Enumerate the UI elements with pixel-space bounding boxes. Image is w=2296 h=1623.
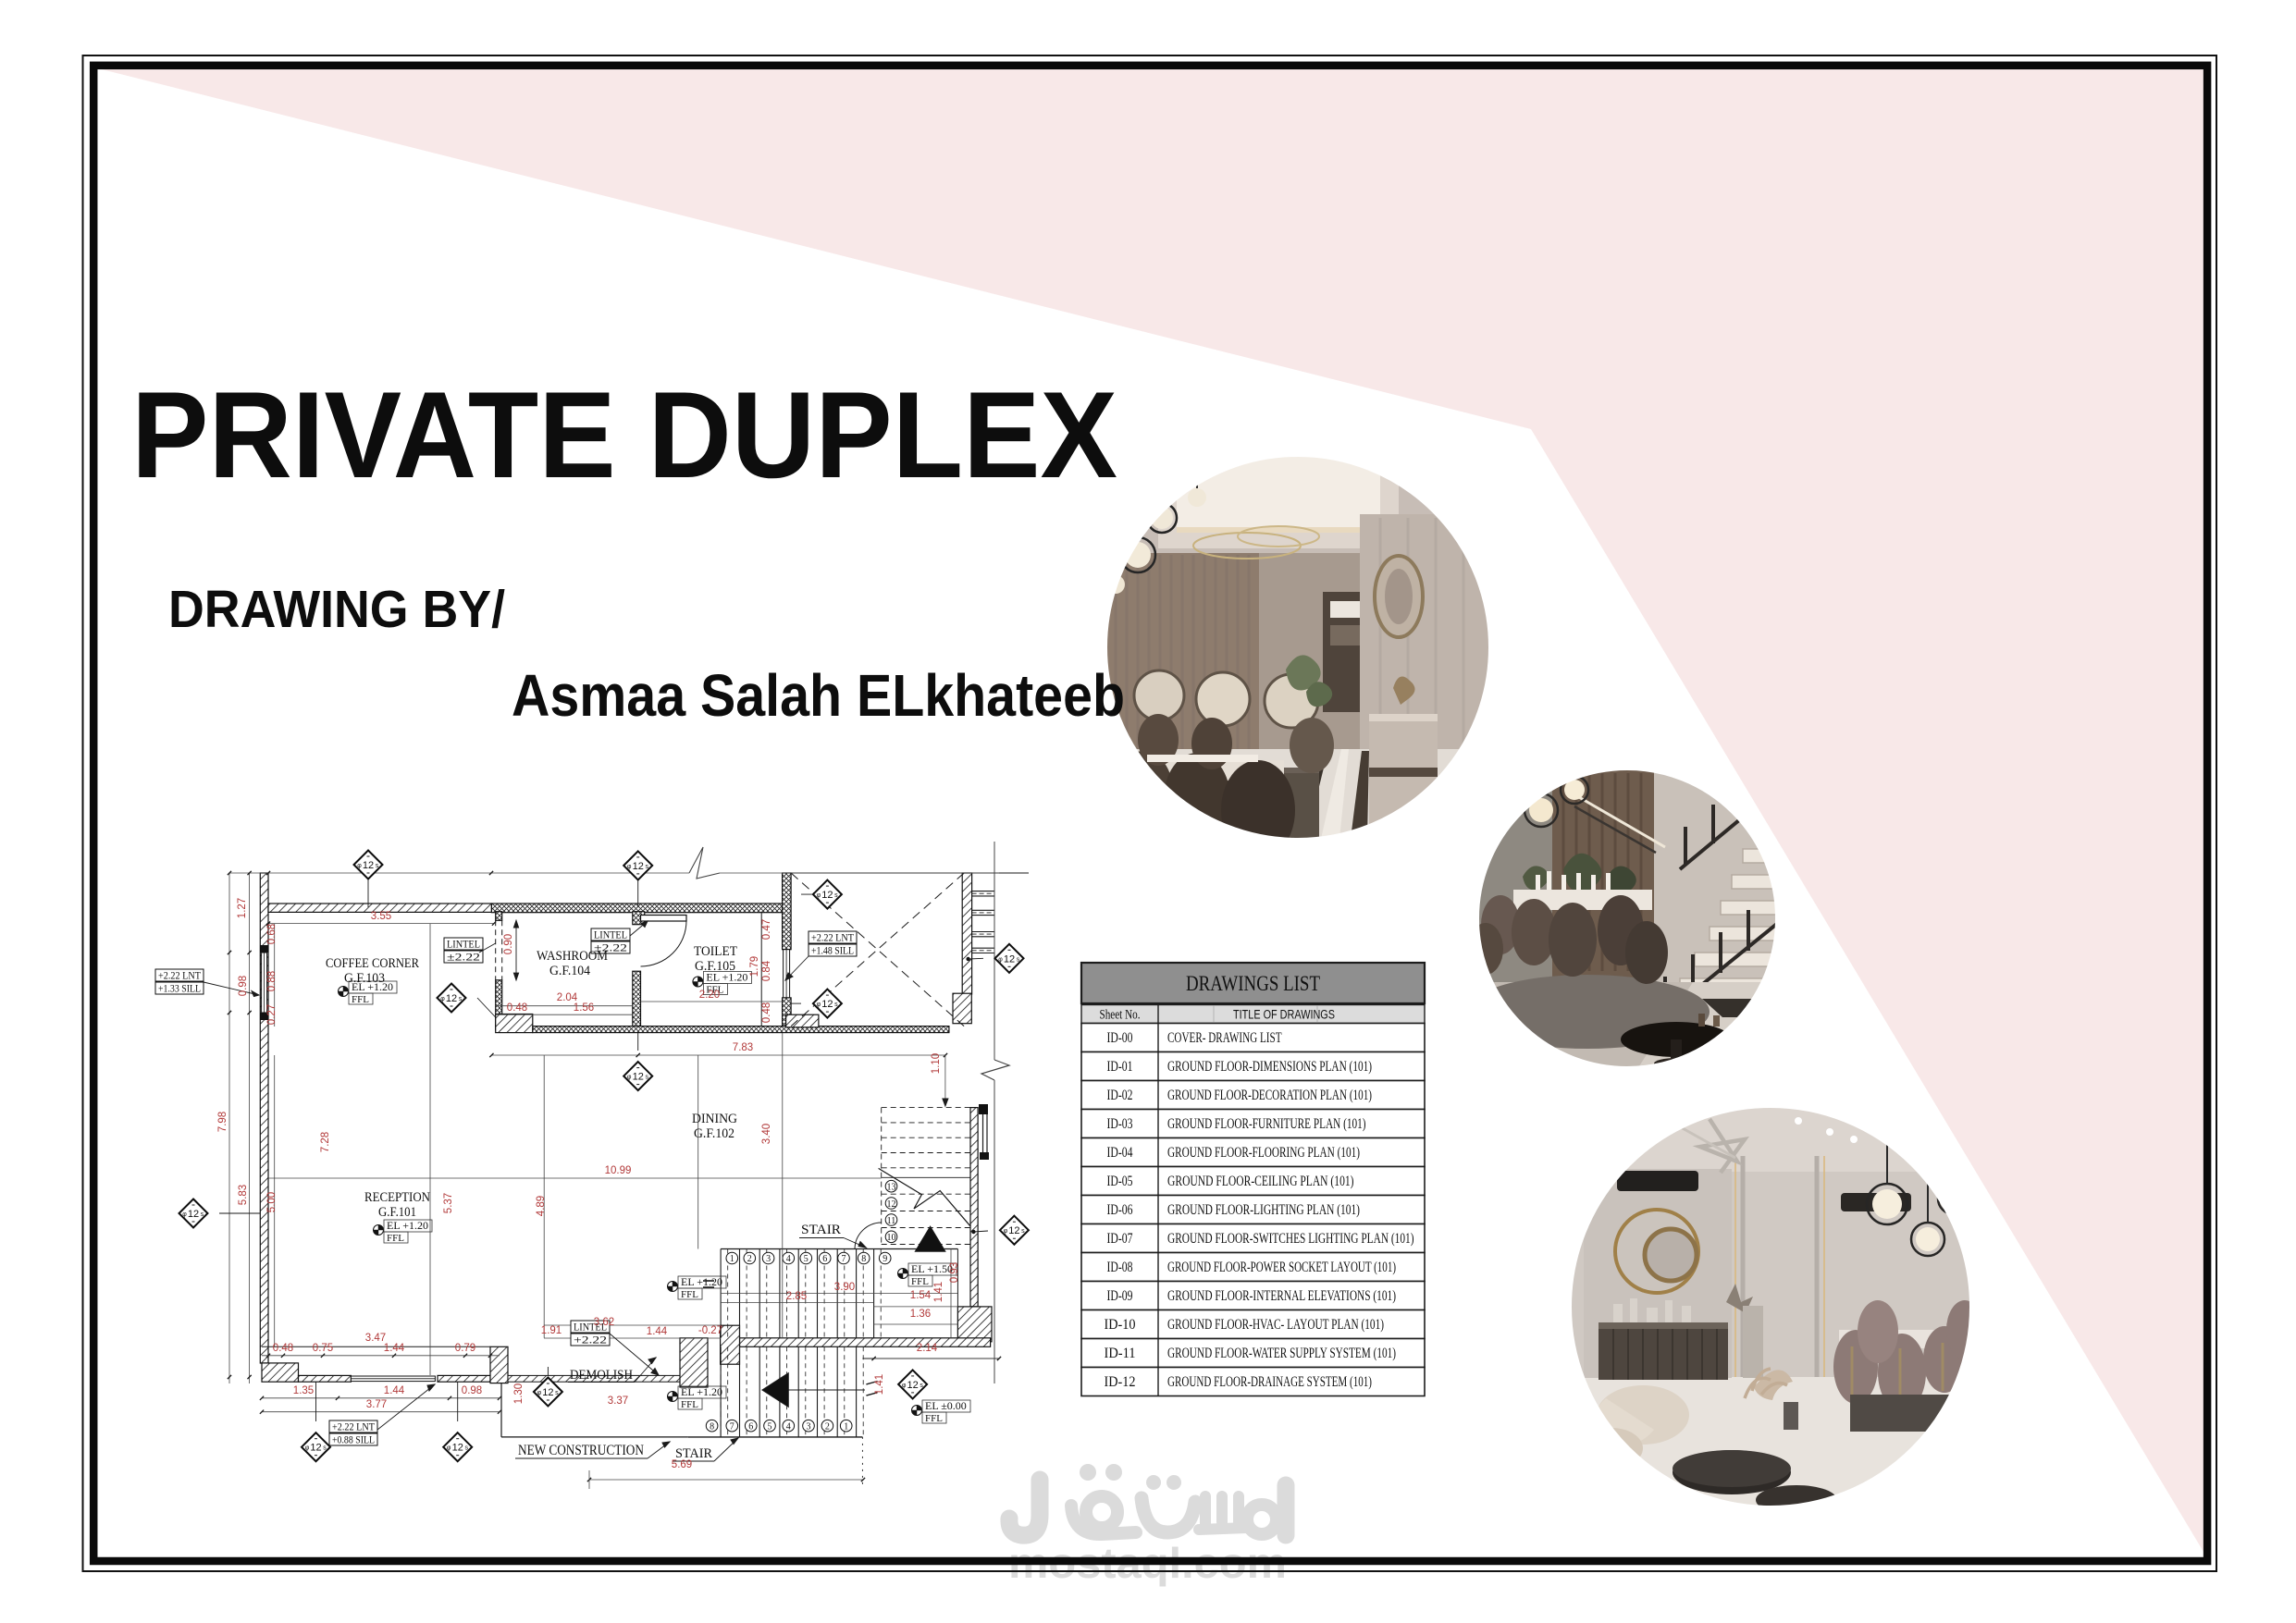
- svg-text:+1.33 SILL: +1.33 SILL: [158, 982, 201, 995]
- svg-text:s: s: [1021, 1228, 1025, 1235]
- svg-text:11: 11: [887, 1216, 896, 1226]
- svg-text:s: s: [645, 1075, 648, 1081]
- svg-text:12: 12: [887, 1199, 896, 1210]
- svg-text:s: s: [555, 1390, 559, 1396]
- svg-text:s: s: [1017, 956, 1020, 963]
- svg-text:1: 1: [844, 1422, 848, 1432]
- svg-text:GROUND FLOOR-DIMENSIONS PLAN (: GROUND FLOOR-DIMENSIONS PLAN (101): [1167, 1059, 1372, 1075]
- svg-text:FFL: FFL: [387, 1233, 404, 1244]
- svg-text:ID-01: ID-01: [1107, 1059, 1133, 1075]
- svg-text:FFL: FFL: [925, 1413, 943, 1424]
- svg-text:ID-09: ID-09: [1107, 1288, 1133, 1304]
- svg-text:1.41: 1.41: [874, 1374, 885, 1395]
- svg-text:3.90: 3.90: [834, 1282, 855, 1293]
- svg-text:3.62: 3.62: [594, 1317, 614, 1328]
- svg-text:7.98: 7.98: [217, 1112, 228, 1132]
- svg-text:s: s: [323, 1445, 327, 1452]
- svg-text:0.88: 0.88: [266, 971, 278, 991]
- svg-text:0.48: 0.48: [507, 1002, 527, 1014]
- svg-text:1.10: 1.10: [931, 1053, 942, 1074]
- svg-text:3.37: 3.37: [608, 1396, 628, 1407]
- svg-text:12: 12: [1008, 1225, 1019, 1236]
- svg-text:-0.27: -0.27: [698, 1325, 722, 1336]
- svg-text:s: s: [376, 863, 379, 869]
- svg-text:5.00: 5.00: [266, 1192, 278, 1212]
- svg-text:+0.88 SILL: +0.88 SILL: [332, 1433, 375, 1446]
- svg-text:ID-12: ID-12: [1105, 1374, 1136, 1390]
- svg-text:G.F.101: G.F.101: [378, 1205, 416, 1220]
- svg-text:0.75: 0.75: [313, 1343, 333, 1354]
- svg-text:GROUND FLOOR-POWER SOCKET LAYO: GROUND FLOOR-POWER SOCKET LAYOUT (101): [1167, 1260, 1396, 1275]
- svg-text:φ: φ: [357, 863, 362, 869]
- svg-text:1.56: 1.56: [574, 1002, 594, 1014]
- svg-text:s: s: [201, 1211, 204, 1218]
- svg-text:EL +1.20: EL +1.20: [387, 1219, 428, 1232]
- svg-text:9: 9: [883, 1254, 887, 1264]
- svg-text:3.77: 3.77: [366, 1399, 387, 1410]
- svg-text:ID-08: ID-08: [1107, 1260, 1133, 1275]
- svg-text:G.F.102: G.F.102: [694, 1126, 734, 1141]
- svg-text:3: 3: [766, 1254, 771, 1264]
- svg-text:+2.22 LNT: +2.22 LNT: [158, 969, 202, 982]
- svg-text:DINING: DINING: [692, 1112, 737, 1126]
- svg-text:0.98: 0.98: [238, 976, 249, 996]
- svg-text:COFFEE CORNER: COFFEE CORNER: [326, 956, 419, 971]
- svg-text:φ: φ: [817, 1002, 821, 1008]
- svg-text:1.54: 1.54: [910, 1290, 932, 1301]
- svg-text:GROUND FLOOR-LIGHTING PLAN (10: GROUND FLOOR-LIGHTING PLAN (101): [1167, 1202, 1360, 1218]
- svg-text:FFL: FFL: [681, 1289, 698, 1300]
- svg-text:s: s: [459, 996, 463, 1002]
- svg-text:EL +1.20: EL +1.20: [681, 1385, 722, 1398]
- svg-text:7: 7: [730, 1422, 734, 1432]
- svg-text:GROUND FLOOR-SWITCHES LIGHTING: GROUND FLOOR-SWITCHES LIGHTING PLAN (101…: [1167, 1231, 1414, 1247]
- svg-text:12: 12: [633, 861, 644, 872]
- svg-text:GROUND FLOOR-CEILING PLAN (101: GROUND FLOOR-CEILING PLAN (101): [1167, 1174, 1354, 1189]
- svg-text:RECEPTION: RECEPTION: [364, 1190, 430, 1205]
- svg-text:s: s: [464, 1445, 468, 1452]
- svg-text:EL +1.50: EL +1.50: [911, 1262, 953, 1275]
- svg-text:φ: φ: [1004, 1228, 1008, 1235]
- svg-text:4: 4: [786, 1422, 791, 1432]
- svg-text:G.F.104: G.F.104: [549, 964, 591, 978]
- svg-text:12: 12: [633, 1072, 644, 1083]
- svg-text:2.14: 2.14: [917, 1343, 938, 1354]
- svg-text:12: 12: [310, 1443, 321, 1454]
- svg-text:EL +1.20: EL +1.20: [681, 1275, 722, 1288]
- svg-text:5.69: 5.69: [672, 1459, 692, 1470]
- svg-text:12: 12: [1004, 953, 1015, 965]
- svg-text:G.F.103: G.F.103: [344, 971, 385, 986]
- svg-text:10.99: 10.99: [605, 1165, 632, 1176]
- svg-text:PRIVATE DUPLEX: PRIVATE DUPLEX: [131, 367, 1117, 504]
- svg-text:φ: φ: [627, 864, 632, 870]
- svg-text:G.F.105: G.F.105: [695, 959, 735, 974]
- svg-text:1.27: 1.27: [237, 898, 248, 918]
- svg-text:NEW CONSTRUCTION: NEW CONSTRUCTION: [518, 1443, 644, 1458]
- svg-text:6: 6: [822, 1254, 827, 1264]
- svg-text:ID-02: ID-02: [1107, 1088, 1133, 1103]
- svg-text:0.48: 0.48: [273, 1343, 293, 1354]
- svg-text:s: s: [834, 1002, 838, 1008]
- svg-text:0.90: 0.90: [503, 934, 514, 954]
- svg-text:4.89: 4.89: [536, 1196, 547, 1216]
- svg-text:LINTEL: LINTEL: [594, 928, 627, 941]
- svg-text:GROUND FLOOR-DECORATION PLAN (: GROUND FLOOR-DECORATION PLAN (101): [1167, 1088, 1372, 1103]
- svg-text:ID-05: ID-05: [1107, 1174, 1133, 1189]
- svg-text:2: 2: [825, 1422, 830, 1432]
- svg-text:φ: φ: [627, 1075, 632, 1081]
- svg-text:7: 7: [842, 1254, 846, 1264]
- svg-text:TOILET: TOILET: [694, 944, 737, 959]
- svg-text:φ: φ: [305, 1445, 310, 1452]
- svg-text:5.37: 5.37: [443, 1193, 454, 1213]
- svg-text:1.36: 1.36: [910, 1309, 931, 1320]
- svg-text:8: 8: [861, 1254, 866, 1264]
- svg-text:ID-10: ID-10: [1105, 1317, 1136, 1333]
- svg-text:12: 12: [821, 890, 833, 901]
- svg-text:GROUND FLOOR-HVAC- LAYOUT PLAN: GROUND FLOOR-HVAC- LAYOUT PLAN (101): [1167, 1317, 1384, 1333]
- svg-text:1.41: 1.41: [933, 1282, 944, 1302]
- svg-text:3: 3: [807, 1422, 811, 1432]
- svg-text:s: s: [645, 864, 648, 870]
- svg-text:7.28: 7.28: [320, 1132, 331, 1152]
- svg-text:0.98: 0.98: [462, 1385, 482, 1396]
- svg-text:GROUND FLOOR-WATER SUPPLY SYST: GROUND FLOOR-WATER SUPPLY SYSTEM (101): [1167, 1346, 1396, 1361]
- svg-text:1.44: 1.44: [384, 1385, 405, 1396]
- svg-text:GROUND FLOOR-FURNITURE PLAN (1: GROUND FLOOR-FURNITURE PLAN (101): [1167, 1116, 1366, 1132]
- svg-text:FFL: FFL: [681, 1399, 698, 1410]
- svg-text:ID-00: ID-00: [1107, 1030, 1133, 1046]
- svg-text:GROUND FLOOR-DRAINAGE SYSTEM (: GROUND FLOOR-DRAINAGE SYSTEM (101): [1167, 1374, 1372, 1390]
- svg-text:1.35: 1.35: [293, 1385, 314, 1396]
- svg-text:COVER- DRAWING LIST: COVER- DRAWING LIST: [1167, 1030, 1282, 1046]
- svg-text:Asmaa Salah ELkhateeb: Asmaa Salah ELkhateeb: [512, 662, 1125, 729]
- svg-text:ID-04: ID-04: [1107, 1145, 1133, 1161]
- svg-text:13: 13: [887, 1183, 896, 1193]
- svg-text:2.85: 2.85: [786, 1291, 807, 1302]
- svg-text:+2.22: +2.22: [574, 1334, 607, 1346]
- svg-text:φ: φ: [902, 1383, 907, 1389]
- svg-text:ID-03: ID-03: [1107, 1116, 1133, 1132]
- svg-text:EL ±0.00: EL ±0.00: [925, 1399, 967, 1412]
- svg-text:+2.22 LNT: +2.22 LNT: [811, 931, 855, 944]
- svg-text:3.55: 3.55: [371, 911, 391, 922]
- svg-text:φ: φ: [440, 996, 445, 1002]
- svg-text:6: 6: [748, 1422, 753, 1432]
- svg-text:±2.22: ±2.22: [447, 951, 480, 964]
- svg-text:7.83: 7.83: [733, 1042, 753, 1053]
- svg-text:5: 5: [768, 1422, 772, 1432]
- svg-text:1.44: 1.44: [384, 1343, 405, 1354]
- svg-text:1.30: 1.30: [513, 1383, 525, 1404]
- svg-text:1.91: 1.91: [541, 1325, 562, 1336]
- svg-text:0.93: 0.93: [949, 1262, 960, 1283]
- svg-text:φ: φ: [817, 892, 821, 899]
- svg-text:GROUND FLOOR-FLOORING PLAN (10: GROUND FLOOR-FLOORING PLAN (101): [1167, 1145, 1360, 1161]
- svg-text:ID-11: ID-11: [1105, 1346, 1136, 1361]
- svg-text:+1.48 SILL: +1.48 SILL: [811, 944, 854, 957]
- svg-text:φ: φ: [447, 1445, 451, 1452]
- svg-text:0.79: 0.79: [455, 1343, 475, 1354]
- svg-text:1.44: 1.44: [647, 1326, 668, 1337]
- svg-text:0.48: 0.48: [761, 1002, 772, 1023]
- svg-text:LINTEL: LINTEL: [447, 938, 480, 951]
- svg-text:s: s: [920, 1383, 923, 1389]
- svg-text:ID-07: ID-07: [1107, 1231, 1133, 1247]
- svg-text:WASHROOM: WASHROOM: [537, 949, 608, 964]
- svg-text:ID-06: ID-06: [1107, 1202, 1133, 1218]
- svg-text:GROUND FLOOR-INTERNAL ELEVATIO: GROUND FLOOR-INTERNAL ELEVATIONS (101): [1167, 1288, 1396, 1304]
- svg-text:s: s: [834, 892, 838, 899]
- svg-text:10: 10: [887, 1233, 896, 1243]
- svg-text:0.47: 0.47: [761, 919, 772, 940]
- svg-text:12: 12: [446, 993, 457, 1004]
- svg-text:12: 12: [542, 1387, 553, 1398]
- svg-text:φ: φ: [537, 1390, 542, 1396]
- svg-text:+2.22 LNT: +2.22 LNT: [332, 1420, 376, 1433]
- svg-text:TITLE OF DRAWINGS: TITLE OF DRAWINGS: [1233, 1008, 1335, 1022]
- svg-text:1.79: 1.79: [749, 956, 760, 977]
- svg-text:5: 5: [804, 1254, 809, 1264]
- svg-text:DRAWINGS LIST: DRAWINGS LIST: [1186, 972, 1320, 995]
- svg-text:φ: φ: [998, 956, 1003, 963]
- svg-text:FFL: FFL: [911, 1276, 929, 1287]
- svg-text:FFL: FFL: [352, 994, 369, 1005]
- svg-text:3.40: 3.40: [761, 1124, 772, 1144]
- svg-text:5.83: 5.83: [238, 1185, 249, 1205]
- svg-text:8: 8: [710, 1422, 714, 1432]
- svg-text:Sheet No.: Sheet No.: [1100, 1008, 1141, 1023]
- svg-text:0.27: 0.27: [266, 1004, 278, 1025]
- svg-text:2: 2: [747, 1254, 752, 1264]
- svg-text:0.68: 0.68: [266, 924, 278, 944]
- svg-text:DRAWING BY/: DRAWING BY/: [168, 580, 505, 639]
- svg-text:12: 12: [907, 1380, 918, 1391]
- svg-text:12: 12: [821, 999, 833, 1010]
- svg-text:12: 12: [363, 860, 374, 871]
- svg-text:2.20: 2.20: [699, 990, 720, 1001]
- svg-text:12: 12: [452, 1443, 463, 1454]
- svg-text:STAIR: STAIR: [801, 1223, 841, 1237]
- svg-text:DEMOLISH: DEMOLISH: [570, 1368, 633, 1383]
- svg-text:4: 4: [786, 1254, 791, 1264]
- svg-text:1: 1: [730, 1254, 734, 1264]
- svg-text:12: 12: [188, 1209, 199, 1220]
- svg-text:0.84: 0.84: [761, 960, 772, 981]
- svg-text:φ: φ: [182, 1211, 187, 1218]
